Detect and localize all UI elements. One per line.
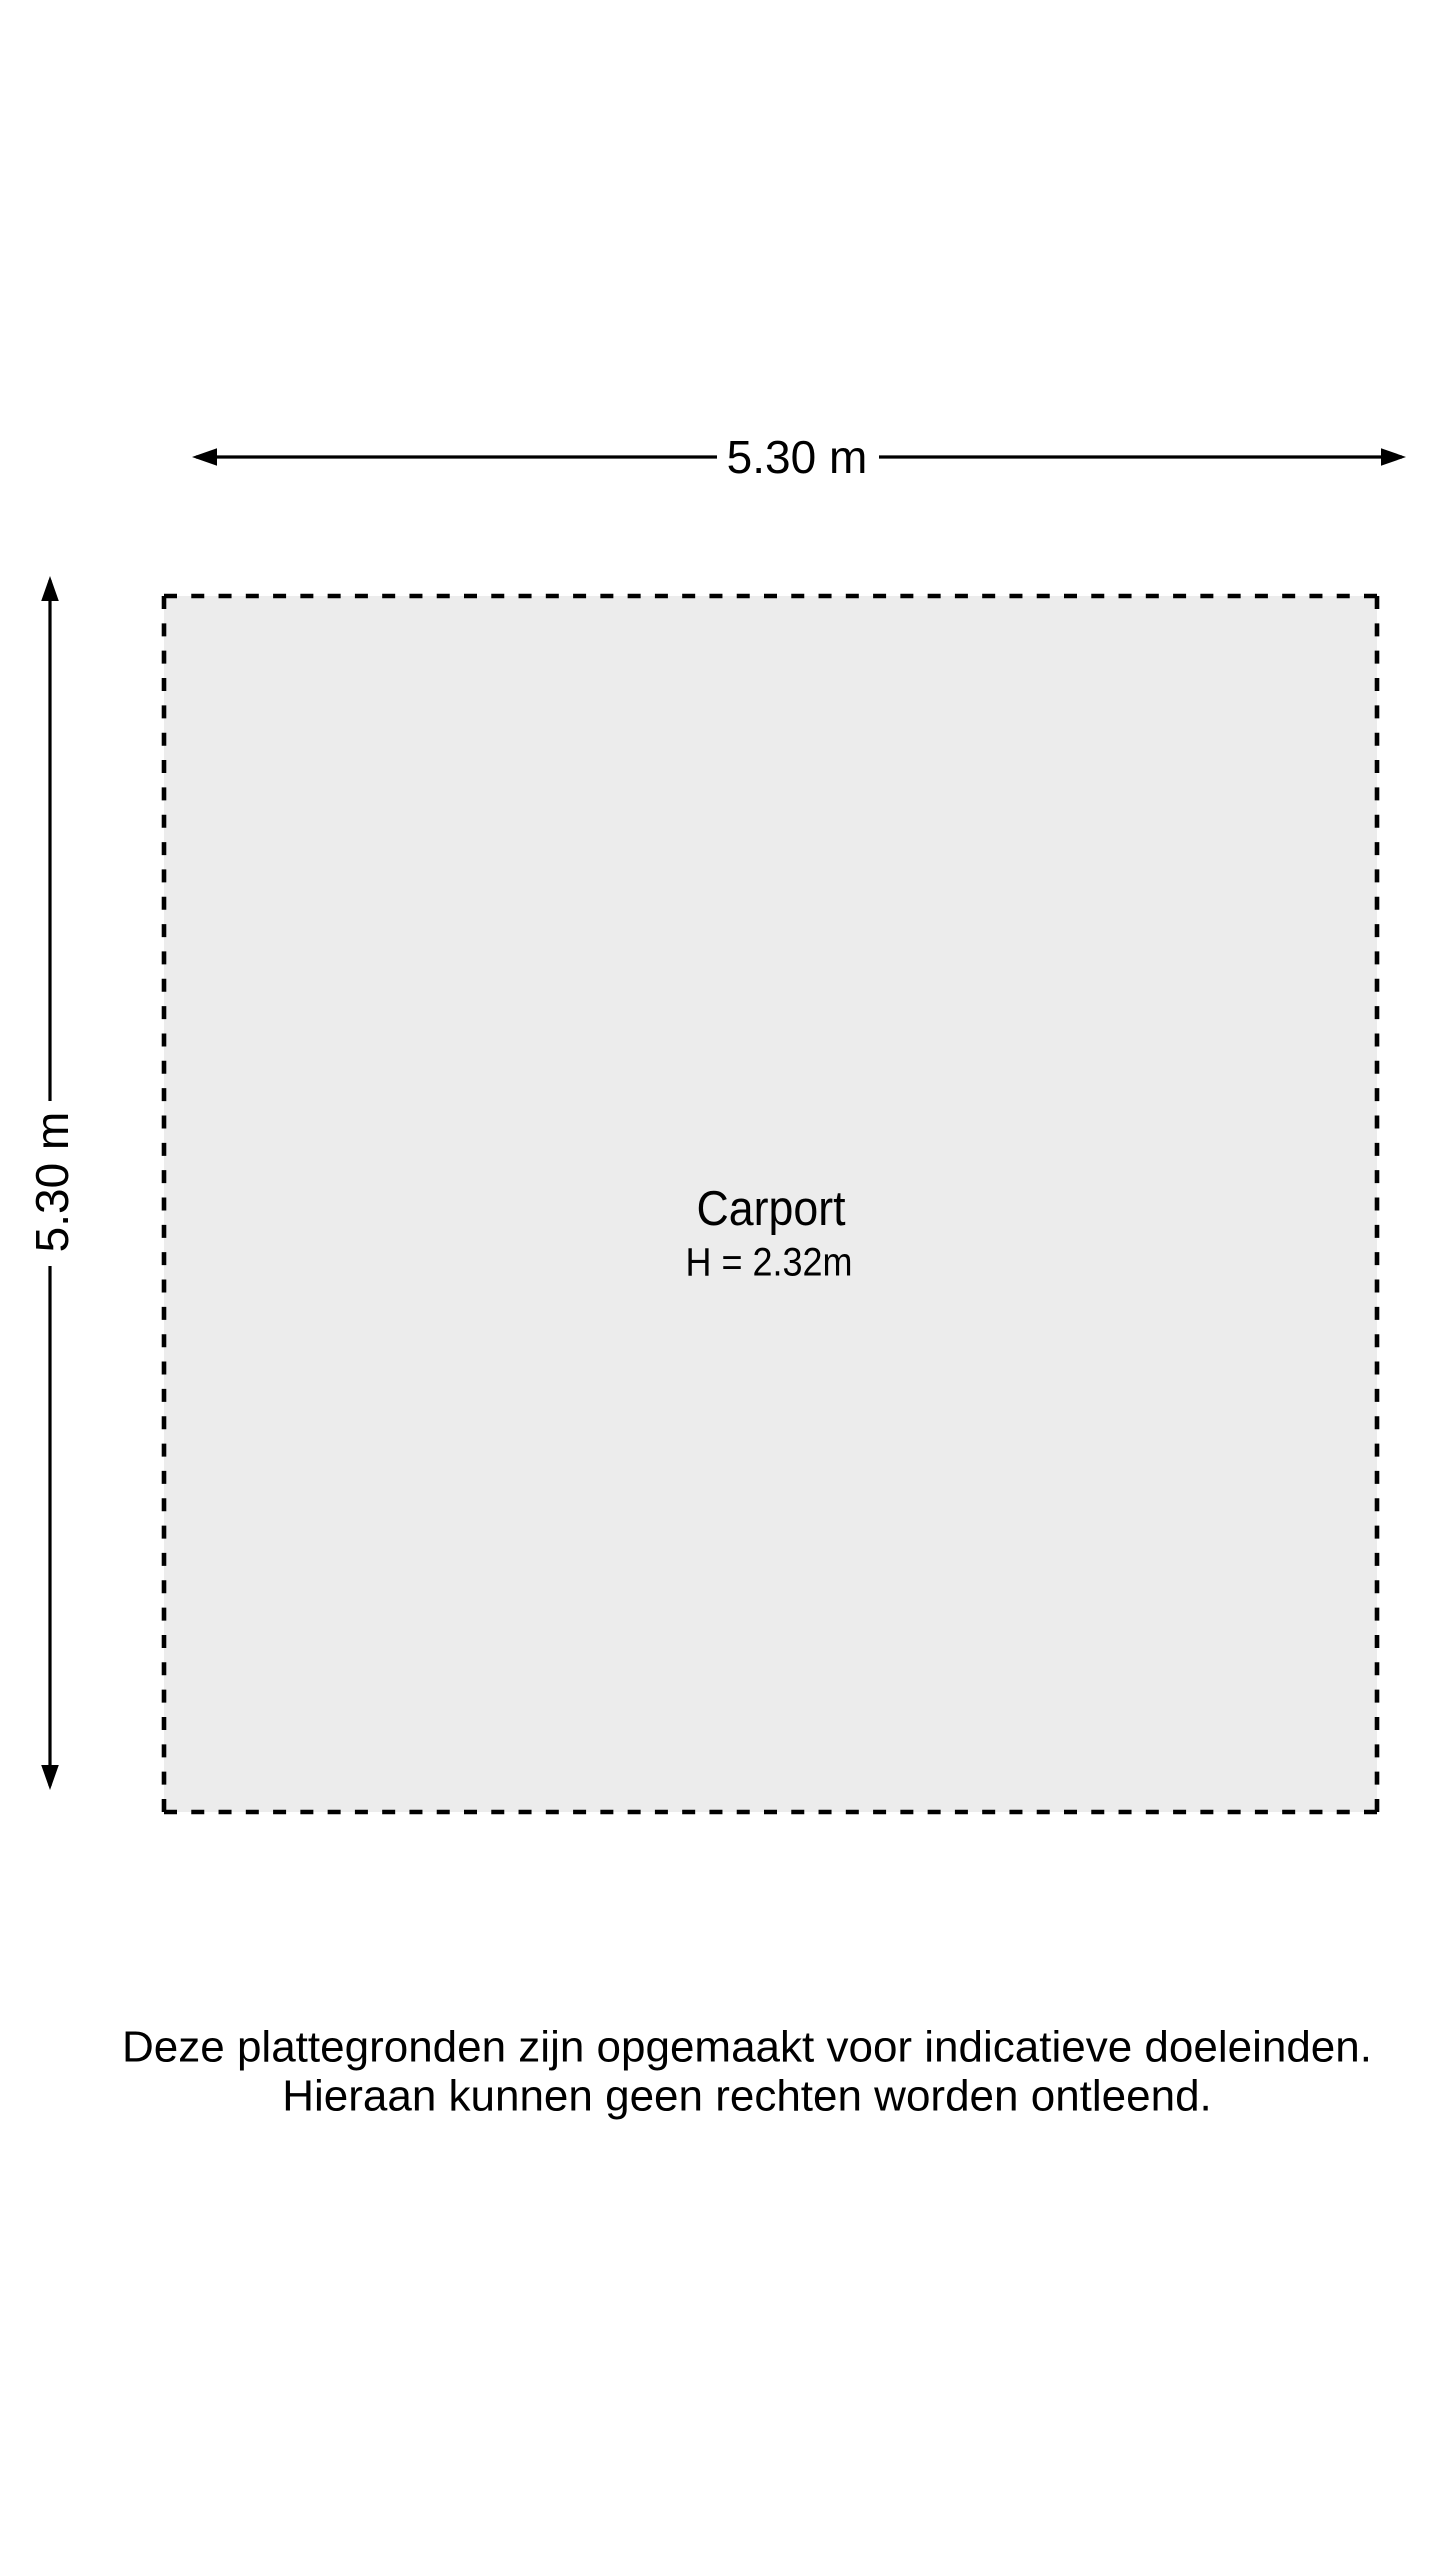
svg-text:Deze plattegronden zijn opgema: Deze plattegronden zijn opgemaakt voor i…	[122, 2023, 1372, 2072]
svg-text:5.30 m: 5.30 m	[26, 1112, 78, 1253]
svg-text:Carport: Carport	[697, 1182, 846, 1236]
svg-text:Hieraan kunnen geen rechten wo: Hieraan kunnen geen rechten worden ontle…	[282, 2072, 1212, 2121]
svg-text:H = 2.32m: H = 2.32m	[686, 1241, 853, 1285]
svg-text:5.30 m: 5.30 m	[727, 431, 868, 483]
